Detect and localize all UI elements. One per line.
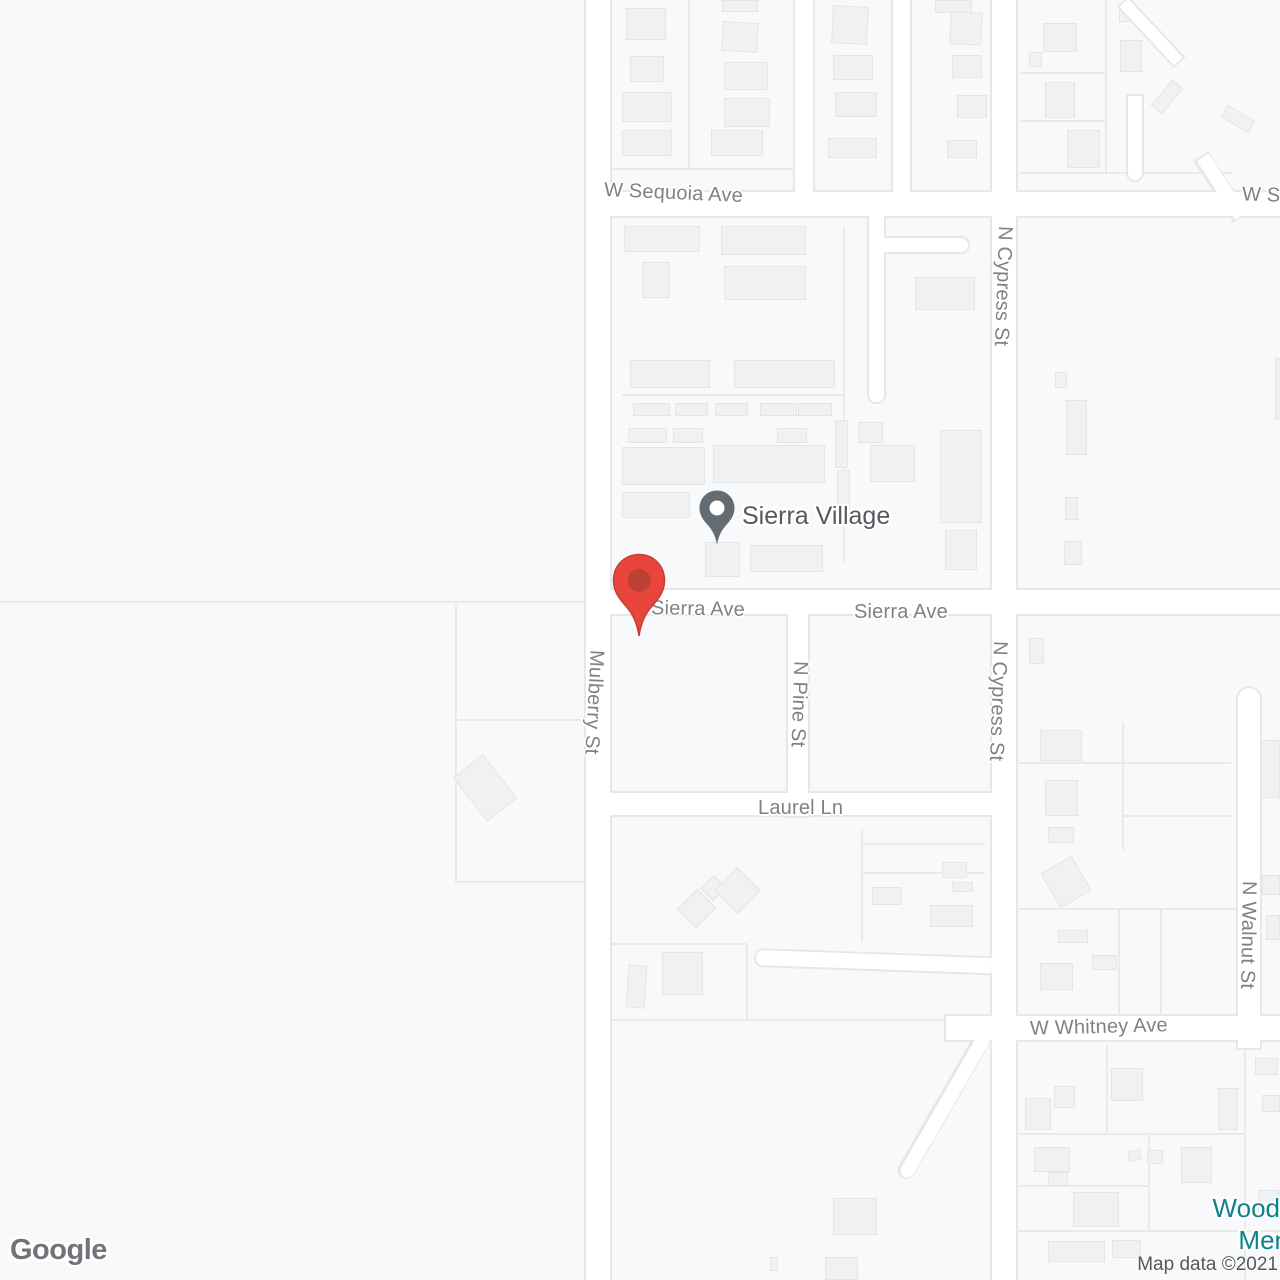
poi-label-teal-truncated[interactable]: Wood Men xyxy=(1213,1192,1280,1256)
map-canvas[interactable]: W Sequoia Ave W S N Cypress St Sierra Av… xyxy=(0,0,1280,1280)
poi-teal-line2: Men xyxy=(1213,1224,1280,1256)
poi-teal-line1: Wood xyxy=(1213,1192,1280,1224)
map-attribution: Map data ©2021 xyxy=(1137,1254,1278,1276)
street-label-w-sequoia-ave: W Sequoia Ave xyxy=(604,179,744,208)
street-label-w-s-truncated: W S xyxy=(1242,183,1280,207)
street-label-n-walnut-st: N Walnut St xyxy=(1235,881,1260,990)
poi-label-sierra-village[interactable]: Sierra Village xyxy=(742,502,890,531)
street-label-sierra-ave-east: Sierra Ave xyxy=(854,601,948,624)
street-label-w-whitney-ave: W Whitney Ave xyxy=(1030,1014,1168,1041)
street-label-mulberry-st: Mulberry St xyxy=(579,649,607,755)
poi-pin-sierra-village[interactable] xyxy=(697,489,737,547)
street-label-n-cypress-st-upper: N Cypress St xyxy=(989,226,1016,347)
street-label-laurel-ln: Laurel Ln xyxy=(758,797,843,820)
street-label-n-cypress-st-lower: N Cypress St xyxy=(984,641,1011,762)
gray-map-pin-icon xyxy=(697,489,737,547)
street-label-n-pine-st: N Pine St xyxy=(786,661,812,748)
google-logo[interactable]: Google xyxy=(10,1234,107,1267)
red-map-pin-icon xyxy=(612,553,666,639)
label-layer: W Sequoia Ave W S N Cypress St Sierra Av… xyxy=(0,0,1280,1280)
dropped-pin-marker[interactable] xyxy=(612,553,666,639)
